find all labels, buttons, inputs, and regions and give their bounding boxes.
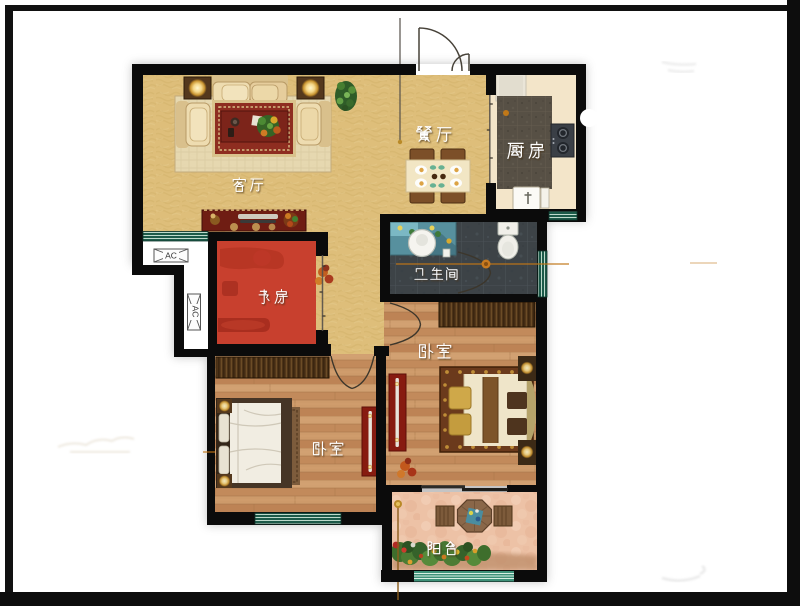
svg-text:AC: AC xyxy=(165,251,177,261)
svg-text:AC: AC xyxy=(190,306,200,318)
